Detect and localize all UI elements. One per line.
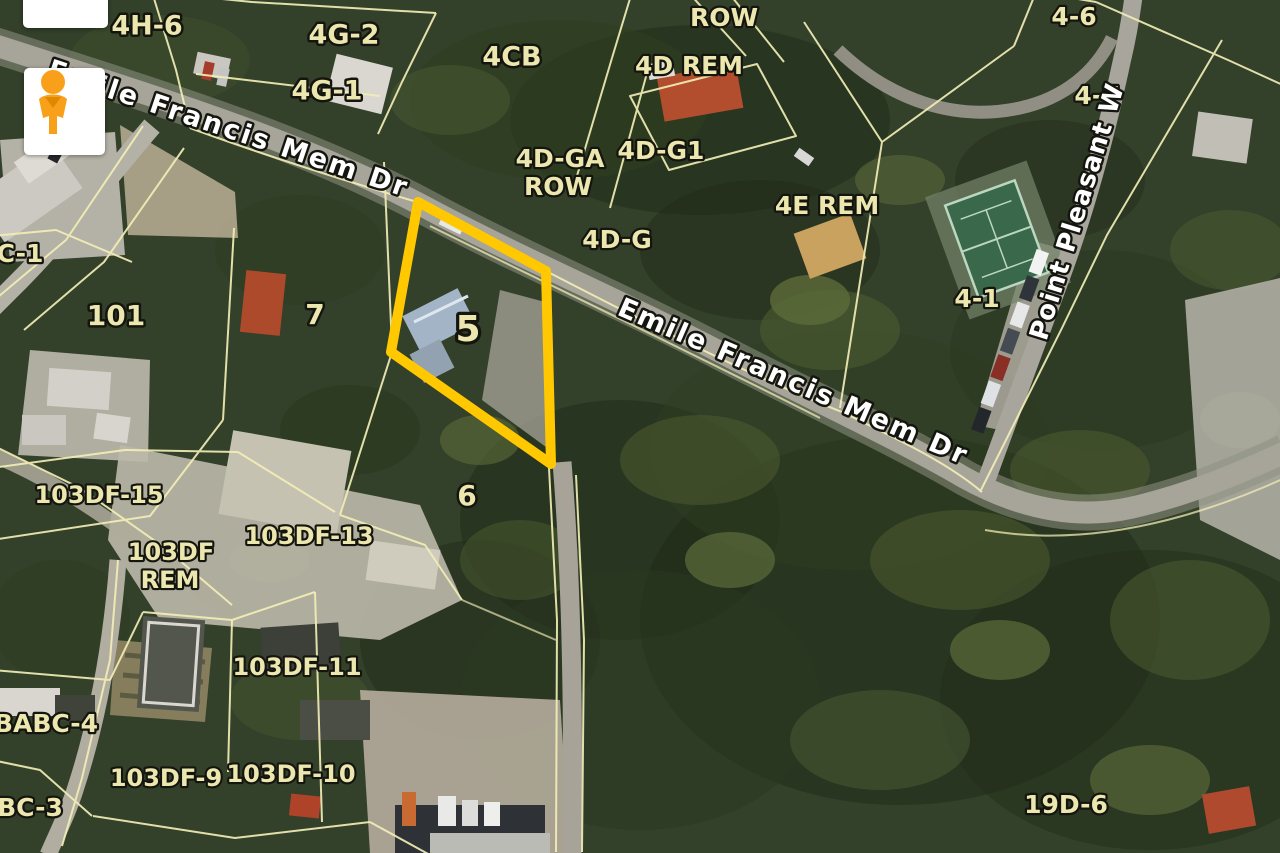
parcel-label-103df-15: 103DF-15 bbox=[34, 481, 163, 509]
parcel-label-4d-g: 4D-G bbox=[582, 225, 652, 254]
parcel-label-19d-6: 19D-6 bbox=[1024, 790, 1108, 819]
pegman-icon bbox=[24, 68, 82, 138]
parcel-label-4-1: 4-1 bbox=[954, 284, 999, 313]
parcel-label-103df-9: 103DF-9 bbox=[110, 764, 222, 792]
parcel-label-5: 5 bbox=[455, 309, 480, 350]
pegman-control[interactable] bbox=[24, 68, 105, 155]
map-viewport[interactable]: 4H-64G-24G-14CBROW4D REM4D-GAROW4D-G14D-… bbox=[0, 0, 1280, 853]
parcel-label-103df-11: 103DF-11 bbox=[232, 653, 361, 681]
parcel-label-row: ROW bbox=[690, 3, 758, 32]
parcel-label-103df-13: 103DF-13 bbox=[244, 522, 373, 550]
parcel-label-4g-2: 4G-2 bbox=[309, 20, 380, 51]
parcel-label-103df: 103DF bbox=[128, 538, 214, 566]
parcel-label-c-1: C-1 bbox=[0, 239, 43, 268]
parcel-label-4cb: 4CB bbox=[482, 42, 541, 73]
parcel-label-babc-4: BABC-4 bbox=[0, 709, 98, 738]
parcel-label-6: 6 bbox=[457, 479, 476, 512]
parcel-label-4e-rem: 4E REM bbox=[775, 191, 879, 220]
parcel-label-4d-ga: 4D-GA bbox=[516, 144, 606, 173]
parcel-label-4g-1: 4G-1 bbox=[292, 76, 363, 107]
parcel-label-101: 101 bbox=[87, 299, 145, 332]
parcel-label-4h-6: 4H-6 bbox=[111, 11, 182, 42]
parcel-label-7: 7 bbox=[305, 298, 324, 331]
parcel-label-bc-3: BC-3 bbox=[0, 793, 63, 822]
parcel-label-4-6: 4-6 bbox=[1051, 2, 1096, 31]
parcel-label-4d-rem: 4D REM bbox=[635, 51, 743, 80]
collapsed-control-card[interactable] bbox=[23, 0, 108, 28]
satellite-map[interactable]: 4H-64G-24G-14CBROW4D REM4D-GAROW4D-G14D-… bbox=[0, 0, 1280, 853]
parcel-label-103df-10: 103DF-10 bbox=[226, 760, 355, 788]
parcel-label-4d-g1: 4D-G1 bbox=[618, 136, 705, 165]
parcel-label-row: ROW bbox=[524, 172, 592, 201]
parcel-label-rem: REM bbox=[141, 566, 200, 594]
